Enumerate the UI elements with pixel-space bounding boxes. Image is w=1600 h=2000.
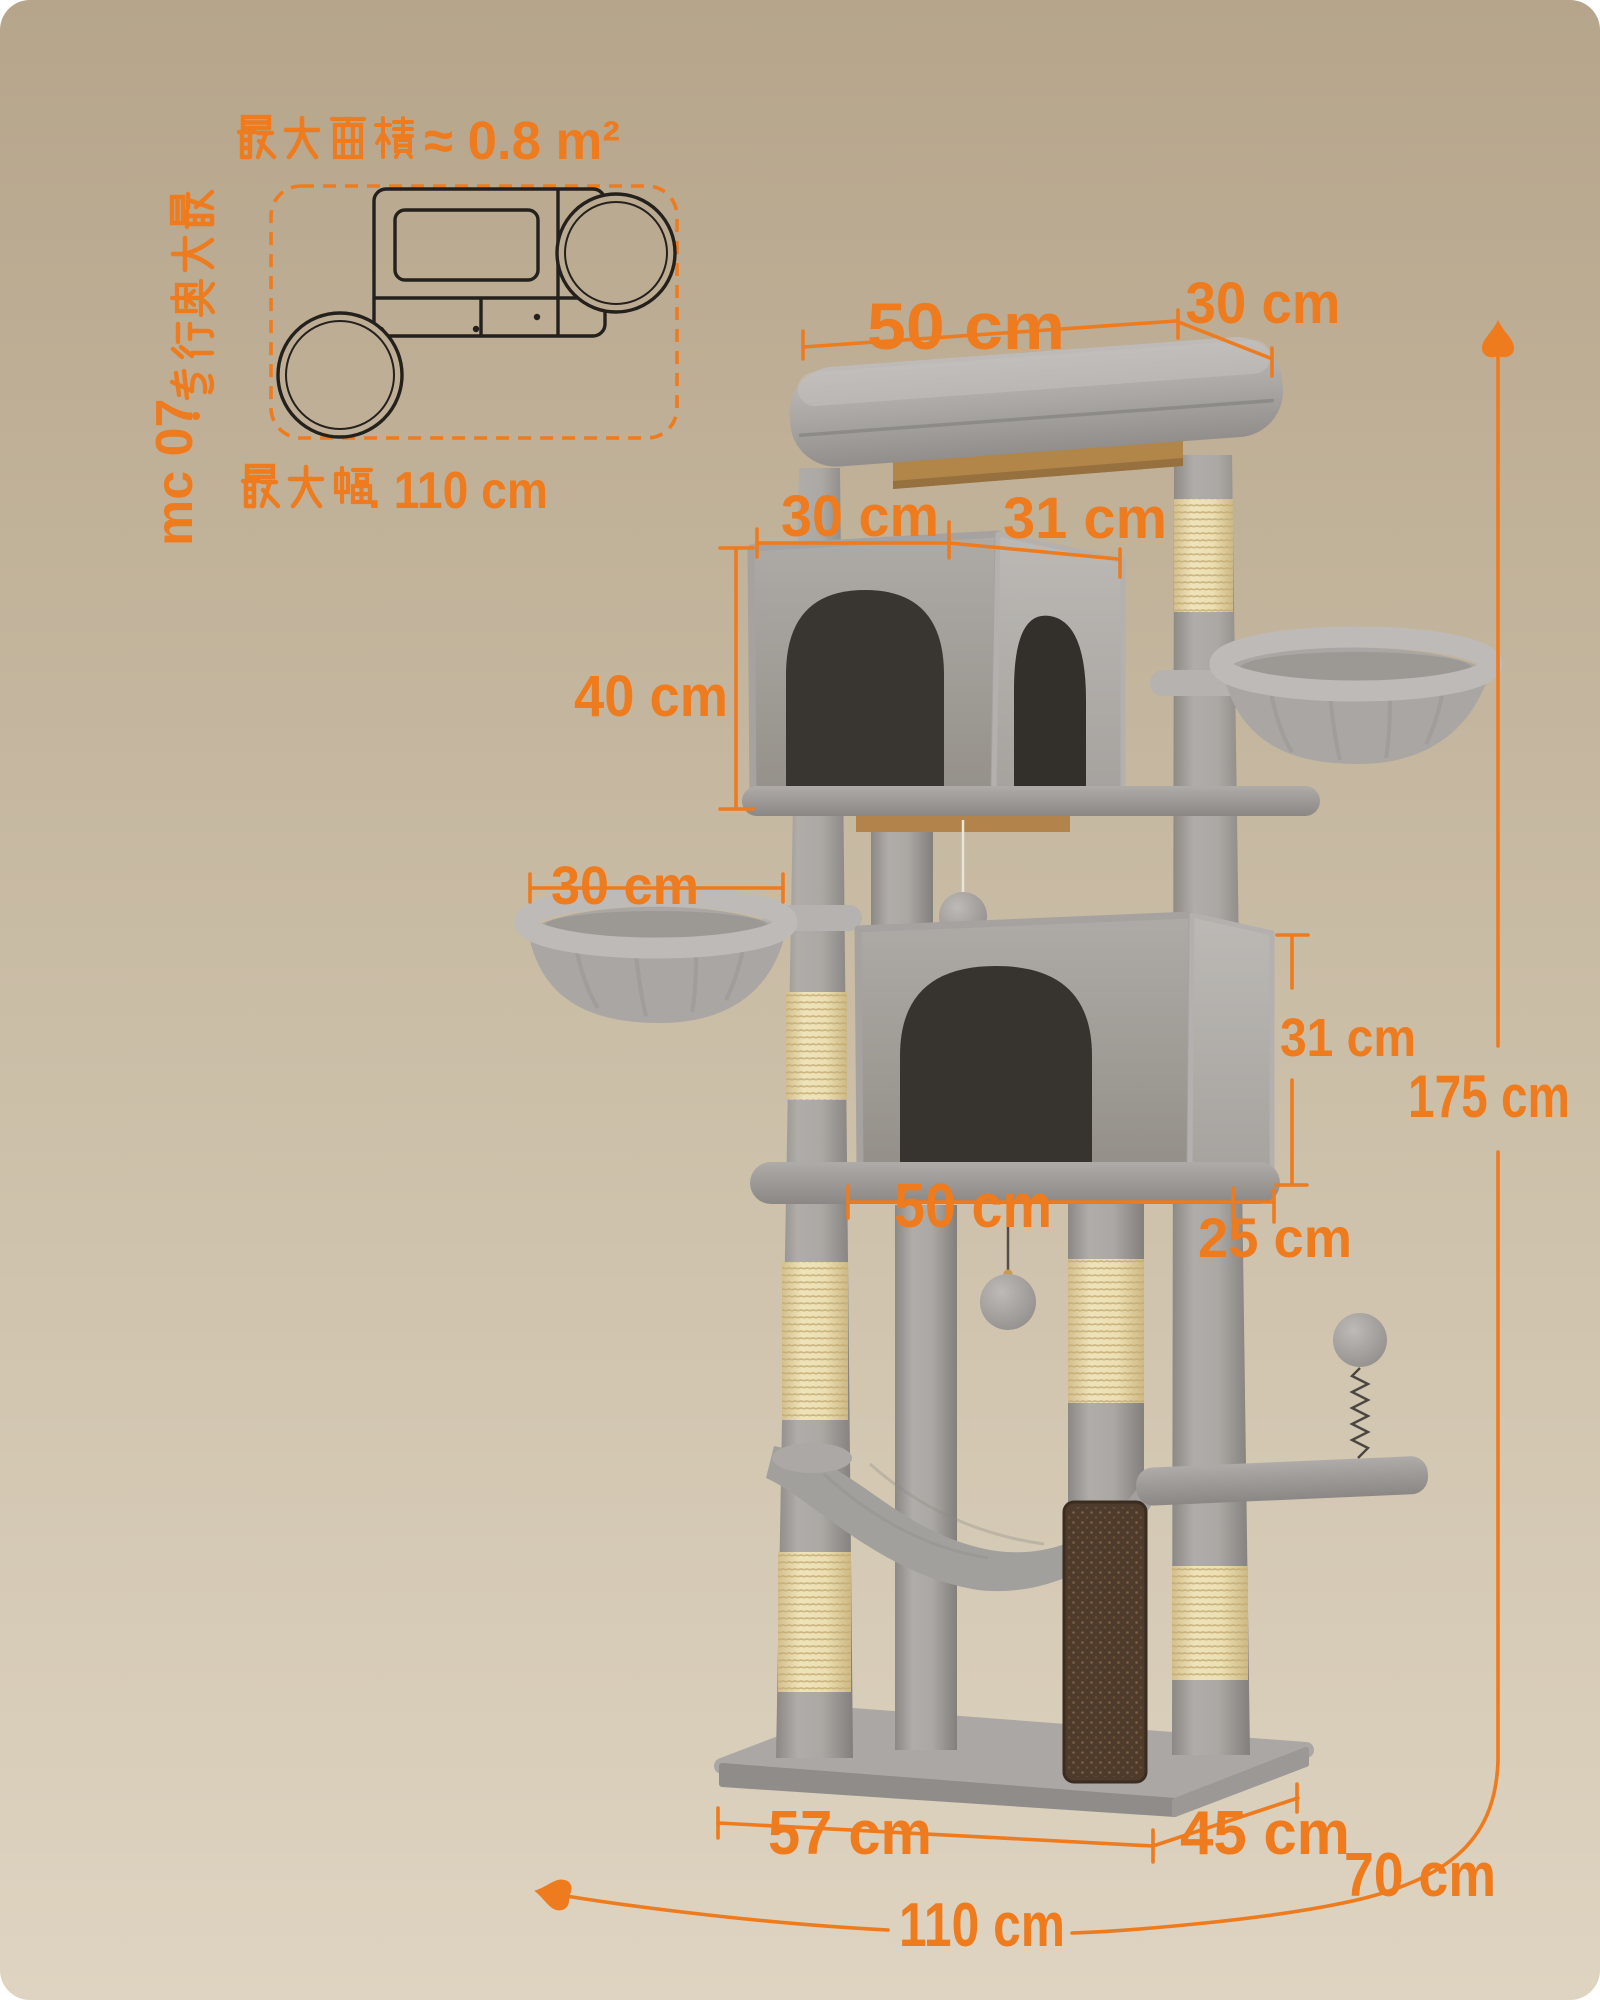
svg-text:40 cm: 40 cm xyxy=(574,664,728,729)
svg-text:30 cm: 30 cm xyxy=(551,856,699,916)
svg-text:31 cm: 31 cm xyxy=(1003,486,1167,551)
svg-text:. 110 cm: . 110 cm xyxy=(368,462,548,520)
svg-text:≈ 0.8 m²: ≈ 0.8 m² xyxy=(424,111,620,171)
svg-text:50 cm: 50 cm xyxy=(867,289,1065,363)
svg-text:30 cm: 30 cm xyxy=(1186,271,1341,336)
svg-text:45 cm: 45 cm xyxy=(1180,1799,1350,1868)
svg-text:30 cm: 30 cm xyxy=(781,484,939,549)
svg-text:110 cm: 110 cm xyxy=(899,1891,1065,1960)
svg-text:25 cm: 25 cm xyxy=(1198,1206,1352,1269)
svg-text:50 cm: 50 cm xyxy=(894,1172,1052,1241)
svg-text:mc 07: mc 07 xyxy=(146,399,204,546)
svg-text:31 cm: 31 cm xyxy=(1280,1008,1416,1068)
svg-text:57 cm: 57 cm xyxy=(768,1799,932,1868)
svg-text:175 cm: 175 cm xyxy=(1408,1063,1570,1130)
svg-text:70 cm: 70 cm xyxy=(1344,1841,1496,1910)
